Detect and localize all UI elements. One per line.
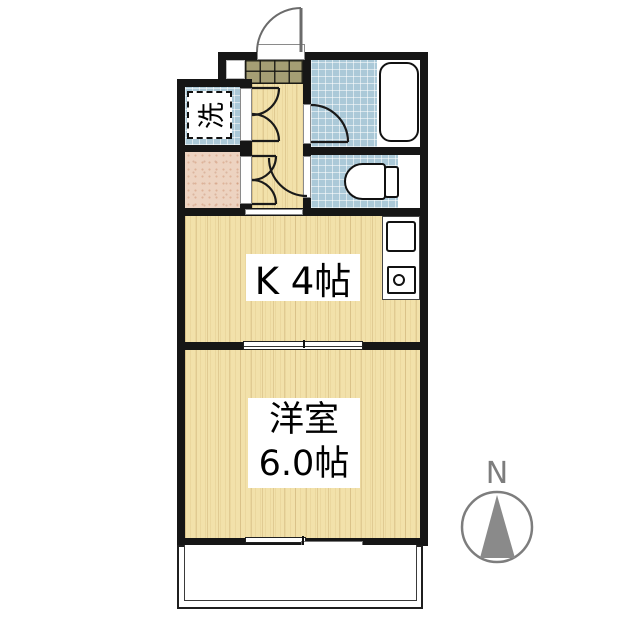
kitchen-label-text: K 4帖 bbox=[255, 251, 352, 305]
compass-north-label: N bbox=[486, 456, 508, 491]
western-room-label: 洋室 6.0帖 bbox=[248, 398, 360, 488]
compass: N bbox=[437, 455, 557, 575]
washing-machine-label: 洗 bbox=[187, 91, 232, 139]
washing-machine-label-text: 洗 bbox=[190, 102, 229, 129]
entrance-threshold bbox=[257, 44, 305, 60]
stove-burner-icon bbox=[393, 274, 405, 286]
compass-needle-icon bbox=[480, 495, 515, 558]
washing-area-door-panel bbox=[240, 88, 252, 141]
toilet-door-panel bbox=[303, 156, 311, 198]
kitchen-label: K 4帖 bbox=[246, 254, 360, 301]
window-center-tick bbox=[302, 536, 304, 545]
bathtub bbox=[379, 62, 419, 142]
toilet-bowl bbox=[344, 163, 386, 200]
bath-toilet-wall bbox=[303, 147, 428, 155]
balcony-window-left-sash bbox=[245, 537, 306, 543]
genkan-step bbox=[226, 60, 245, 79]
compass-circle bbox=[462, 492, 532, 562]
room-label-line2: 6.0帖 bbox=[259, 443, 350, 487]
genkan-tile-floor bbox=[245, 60, 303, 84]
right-wall bbox=[420, 52, 428, 546]
bathroom-door-panel bbox=[303, 104, 311, 144]
kitchen-room-sliding-door bbox=[243, 341, 363, 350]
balcony-inner-rail bbox=[184, 545, 417, 601]
storage-door-panel bbox=[240, 156, 252, 204]
kitchen-sink bbox=[386, 221, 416, 252]
storage-closet-floor bbox=[185, 152, 240, 208]
toilet-tank bbox=[384, 166, 399, 198]
bathroom-floor bbox=[311, 60, 377, 147]
room-label-line1: 洋室 bbox=[269, 399, 339, 443]
floor-plan-canvas: K 4帖 洋室 6.0帖 洗 N bbox=[0, 0, 640, 640]
hall-kitchen-threshold bbox=[245, 209, 303, 215]
hallway-floor bbox=[252, 84, 303, 216]
top-wall bbox=[218, 52, 428, 60]
toilet-side-counter bbox=[398, 155, 420, 208]
